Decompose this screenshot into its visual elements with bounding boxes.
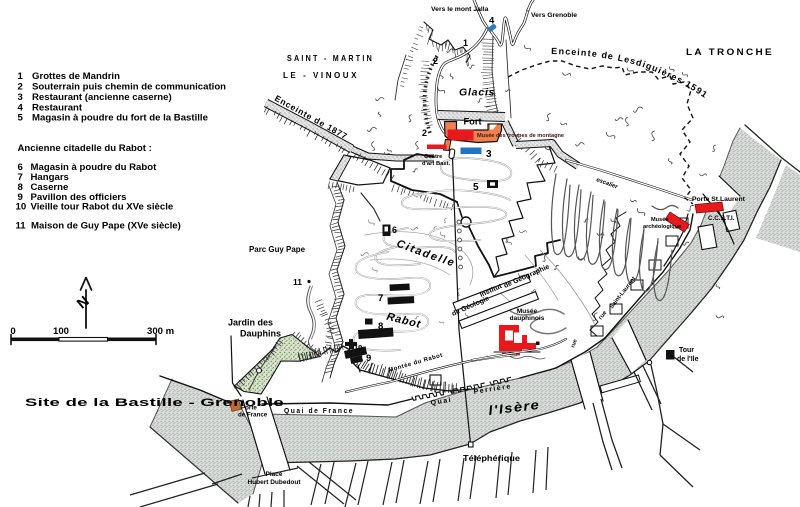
svg-text:300 m: 300 m xyxy=(147,326,174,337)
svg-text:Musée: Musée xyxy=(651,217,668,223)
svg-text:7: 7 xyxy=(378,293,383,304)
svg-text:Musée: Musée xyxy=(517,308,538,315)
svg-text:Téléphérique: Téléphérique xyxy=(463,453,520,463)
svg-text:Fort: Fort xyxy=(464,117,482,127)
svg-text:Centre: Centre xyxy=(424,154,443,160)
svg-text:2: 2 xyxy=(18,82,23,93)
svg-text:6: 6 xyxy=(392,225,397,235)
svg-text:Porte St.Laurent: Porte St.Laurent xyxy=(692,196,746,203)
svg-text:Tour: Tour xyxy=(679,347,694,354)
svg-text:dauphinois: dauphinois xyxy=(510,315,545,322)
svg-text:10: 10 xyxy=(354,343,362,352)
svg-text:C.C.S.T.I.: C.C.S.T.I. xyxy=(708,215,735,222)
svg-text:Place: Place xyxy=(266,471,283,478)
svg-text:Ancienne citadelle du Rabot :: Ancienne citadelle du Rabot : xyxy=(18,143,152,154)
svg-text:9: 9 xyxy=(366,353,371,364)
svg-text:4: 4 xyxy=(18,102,24,113)
svg-text:archéologique: archéologique xyxy=(643,224,681,230)
svg-text:LA TRONCHE: LA TRONCHE xyxy=(686,47,774,58)
svg-text:Grottes de Mandrin: Grottes de Mandrin xyxy=(32,71,120,82)
svg-text:d'art Bast.: d'art Bast. xyxy=(422,161,451,167)
svg-text:Dauphins: Dauphins xyxy=(240,329,281,339)
svg-text:SAINT - MARTIN: SAINT - MARTIN xyxy=(287,54,374,63)
svg-text:2: 2 xyxy=(433,56,438,66)
svg-text:8: 8 xyxy=(378,321,383,332)
svg-text:2: 2 xyxy=(422,128,427,138)
svg-text:Quai de France: Quai de France xyxy=(284,408,354,415)
svg-text:Site de la Bastille - Grenoble: Site de la Bastille - Grenoble xyxy=(25,397,284,409)
svg-text:1: 1 xyxy=(18,71,24,82)
svg-text:3: 3 xyxy=(486,149,492,160)
svg-text:10: 10 xyxy=(16,202,27,213)
svg-text:de France: de France xyxy=(238,412,268,419)
svg-text:0: 0 xyxy=(10,326,15,337)
svg-text:100: 100 xyxy=(53,326,69,337)
svg-text:Vers Grenoble: Vers Grenoble xyxy=(531,12,577,19)
svg-text:11: 11 xyxy=(293,277,302,287)
svg-text:1: 1 xyxy=(463,38,468,48)
svg-text:Vers le mont Jalla: Vers le mont Jalla xyxy=(431,6,489,13)
svg-text:Parc Guy Pape: Parc Guy Pape xyxy=(249,244,305,254)
svg-text:Jardin des: Jardin des xyxy=(228,318,273,328)
svg-text:5: 5 xyxy=(18,113,24,124)
svg-text:Glacis: Glacis xyxy=(459,87,495,99)
svg-text:Magasin à poudre du fort de la: Magasin à poudre du fort de la Bastille xyxy=(32,113,208,124)
svg-text:5: 5 xyxy=(473,182,479,193)
svg-text:11: 11 xyxy=(16,221,27,232)
svg-text:Hubert Dubedout: Hubert Dubedout xyxy=(247,479,301,486)
svg-text:de l'Ile: de l'Ile xyxy=(677,356,699,363)
svg-text:Souterrain puis chemin de comm: Souterrain puis chemin de communication xyxy=(32,82,226,93)
svg-text:LE - VINOUX: LE - VINOUX xyxy=(283,71,359,80)
svg-text:Vieille tour Rabot du XVe sièc: Vieille tour Rabot du XVe siècle xyxy=(31,202,174,213)
svg-text:Restaurant: Restaurant xyxy=(32,102,83,113)
svg-text:Maison de Guy Pape (XVe siècle: Maison de Guy Pape (XVe siècle) xyxy=(31,221,181,232)
svg-text:4: 4 xyxy=(489,16,495,27)
svg-text:Musée des troupes de montagne: Musée des troupes de montagne xyxy=(477,133,564,139)
